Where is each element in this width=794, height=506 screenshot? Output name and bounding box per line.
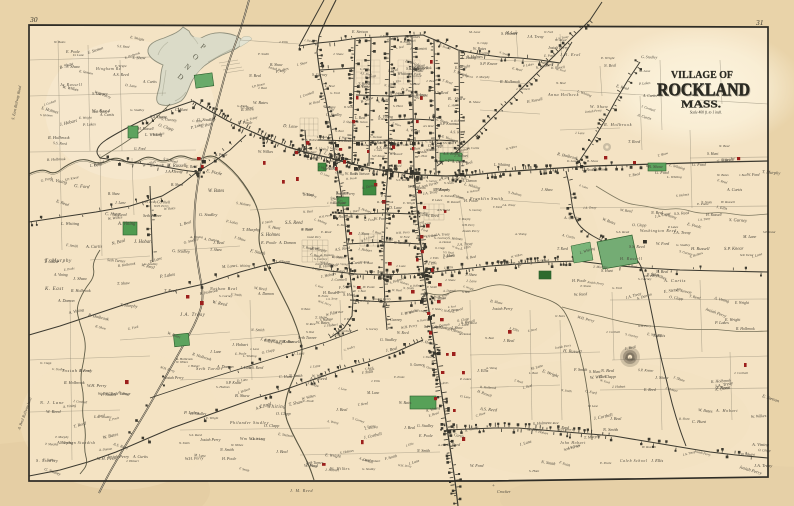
svg-text:30: 30 <box>29 15 38 24</box>
svg-text:D. Lane: D. Lane <box>388 205 402 210</box>
svg-text:W. Bates: W. Bates <box>717 173 729 177</box>
svg-text:R. Holbrook: R. Holbrook <box>735 327 755 331</box>
svg-text:M. Lane: M. Lane <box>742 234 757 239</box>
svg-text:J. Ellis: J. Ellis <box>477 368 489 373</box>
svg-text:Josiah Perry: Josiah Perry <box>492 306 513 311</box>
svg-text:S. Holmes: S. Holmes <box>592 167 608 172</box>
svg-text:S. Hunt: S. Hunt <box>303 193 315 197</box>
svg-text:W. Bates: W. Bates <box>365 269 376 274</box>
svg-text:J. Hobart: J. Hobart <box>134 240 153 245</box>
svg-text:Seth Turner: Seth Turner <box>143 213 162 218</box>
svg-text:J. Shaw: J. Shaw <box>417 150 428 154</box>
svg-text:S. Holmes: S. Holmes <box>306 138 319 142</box>
svg-text:O. Clapp: O. Clapp <box>428 143 443 148</box>
svg-text:N. Smith: N. Smith <box>416 449 430 453</box>
svg-text:K. East: K. East <box>44 287 64 292</box>
svg-text:J. Corthell: J. Corthell <box>606 330 620 334</box>
svg-text:W. Ford: W. Ford <box>470 463 484 468</box>
svg-text:A. Curtis: A. Curtis <box>726 187 742 192</box>
svg-text:MASS.: MASS. <box>681 99 721 111</box>
svg-text:E. Stetson: E. Stetson <box>336 223 351 227</box>
svg-text:N. Beal: N. Beal <box>603 63 617 68</box>
svg-text:W. Ford: W. Ford <box>747 173 760 177</box>
svg-text:E. Wright: E. Wright <box>600 56 615 60</box>
svg-text:W. Bates: W. Bates <box>527 427 542 432</box>
svg-text:E. Poole: E. Poole <box>393 375 405 379</box>
svg-text:E. Stetson: E. Stetson <box>354 172 370 176</box>
svg-text:F. Smith: F. Smith <box>426 285 438 289</box>
svg-text:J. Beal: J. Beal <box>358 290 366 293</box>
svg-text:S. Gurney: S. Gurney <box>469 208 482 212</box>
svg-text:E. Stetson: E. Stetson <box>351 29 368 34</box>
svg-text:T. Reed: T. Reed <box>344 317 354 321</box>
svg-text:B. Shaw: B. Shaw <box>679 417 691 421</box>
svg-text:J. Corthell: J. Corthell <box>331 278 347 282</box>
svg-text:A. Vining: A. Vining <box>189 235 203 239</box>
svg-text:S. Shaw: S. Shaw <box>150 114 167 119</box>
svg-text:A. Vining: A. Vining <box>751 442 770 447</box>
svg-text:G. Ford: G. Ford <box>330 91 340 95</box>
svg-text:J. Hobart: J. Hobart <box>232 342 249 347</box>
svg-text:A. Vining: A. Vining <box>53 273 68 277</box>
svg-text:A. Vining: A. Vining <box>514 232 527 236</box>
svg-text:S. Gurney: S. Gurney <box>434 236 448 240</box>
svg-text:S. Holmes: S. Holmes <box>40 113 53 117</box>
svg-text:L. Beal: L. Beal <box>354 116 365 120</box>
svg-text:T. Reed: T. Reed <box>557 247 568 251</box>
svg-text:W. Wilkes: W. Wilkes <box>258 150 273 154</box>
svg-text:A.S. Reed: A.S. Reed <box>449 130 465 135</box>
svg-text:J. Corthell: J. Corthell <box>330 310 343 314</box>
svg-text:M. Lane: M. Lane <box>587 404 599 408</box>
svg-text:S. Hunt: S. Hunt <box>529 469 540 473</box>
svg-text:J. Lane: J. Lane <box>458 323 470 327</box>
svg-text:W. Ford: W. Ford <box>425 260 436 264</box>
svg-text:N. Beal: N. Beal <box>371 141 383 145</box>
svg-text:J. Hobart: J. Hobart <box>368 459 380 463</box>
svg-text:T. Shaw: T. Shaw <box>117 280 130 286</box>
svg-text:T. Shaw: T. Shaw <box>432 307 441 311</box>
svg-text:W. Reed: W. Reed <box>445 269 455 272</box>
svg-text:R. Holbrook: R. Holbrook <box>603 122 633 127</box>
svg-text:Seth Turner: Seth Turner <box>111 391 131 396</box>
svg-text:A. Damon: A. Damon <box>442 288 457 293</box>
svg-text:N. Smith: N. Smith <box>178 441 190 445</box>
svg-text:ROCKLAND: ROCKLAND <box>657 80 750 100</box>
svg-text:S. Holmes: S. Holmes <box>412 93 427 97</box>
svg-text:E. Poole: E. Poole <box>214 153 228 157</box>
svg-text:H. Poole: H. Poole <box>362 285 375 289</box>
svg-text:Ja Russell: Ja Russell <box>60 82 83 87</box>
svg-text:G. Studley: G. Studley <box>172 248 190 254</box>
svg-text:J. Beal: J. Beal <box>503 338 515 343</box>
svg-text:E. Wright: E. Wright <box>378 168 391 172</box>
svg-text:B. Shaw: B. Shaw <box>171 183 184 187</box>
svg-text:W.H. Perry: W.H. Perry <box>462 224 475 227</box>
svg-text:J. Beal: J. Beal <box>739 174 747 177</box>
svg-text:O. Clapp: O. Clapp <box>40 361 52 365</box>
svg-text:Josiah Perry: Josiah Perry <box>355 167 372 171</box>
svg-text:J.A. Treay: J.A. Treay <box>502 203 516 207</box>
svg-text:A. Vining: A. Vining <box>336 262 348 266</box>
svg-text:G. Ford: G. Ford <box>692 162 707 167</box>
svg-text:B. Shaw: B. Shaw <box>448 96 466 101</box>
svg-text:J.A. Treay: J.A. Treay <box>326 296 339 301</box>
svg-text:J. Lane: J. Lane <box>575 131 585 135</box>
svg-text:F. Smith: F. Smith <box>380 194 392 198</box>
svg-text:J. Ellis: J. Ellis <box>279 40 289 44</box>
svg-text:Josiah Perry: Josiah Perry <box>107 454 129 459</box>
svg-text:A. Hobart: A. Hobart <box>715 408 738 413</box>
svg-text:J. Corthell: J. Corthell <box>404 40 416 43</box>
svg-text:S.S. Reed: S.S. Reed <box>189 433 202 437</box>
svg-text:Wm Whiting: Wm Whiting <box>240 436 266 441</box>
svg-text:S. Hunt: S. Hunt <box>707 152 719 156</box>
svg-text:J. Beal: J. Beal <box>276 449 288 454</box>
svg-text:N. Beal: N. Beal <box>718 144 730 148</box>
svg-text:J. Lane: J. Lane <box>293 351 305 356</box>
svg-text:John Hobart: John Hobart <box>560 441 586 445</box>
svg-text:H. Russell: H. Russell <box>641 445 656 449</box>
svg-text:J. Lane: J. Lane <box>115 201 126 205</box>
svg-text:G. Studley: G. Studley <box>362 467 376 471</box>
svg-text:M. Lane: M. Lane <box>417 235 428 238</box>
svg-text:H. Russell: H. Russell <box>446 200 460 204</box>
svg-text:B. Shaw: B. Shaw <box>357 84 369 88</box>
svg-text:J. Beal: J. Beal <box>426 79 435 83</box>
svg-text:S. Gurney: S. Gurney <box>312 73 327 77</box>
svg-text:L. Whiting: L. Whiting <box>666 175 682 179</box>
svg-text:B. Shaw: B. Shaw <box>648 164 663 169</box>
svg-text:E. Poole: E. Poole <box>418 433 433 438</box>
svg-text:S. Studley: S. Studley <box>36 458 59 463</box>
svg-text:L. Beal: L. Beal <box>324 84 335 88</box>
svg-text:Josiah Perry: Josiah Perry <box>336 192 355 196</box>
svg-text:N. J. Lane: N. J. Lane <box>39 400 64 405</box>
svg-text:W. Reed: W. Reed <box>397 331 409 335</box>
svg-text:A. Vining: A. Vining <box>378 273 393 277</box>
svg-text:J. Shaw: J. Shaw <box>445 278 456 282</box>
svg-text:W. Shaw: W. Shaw <box>590 104 608 109</box>
svg-text:A. Curtis: A. Curtis <box>466 146 480 150</box>
svg-text:E. Poole: E. Poole <box>237 120 253 125</box>
svg-text:J. Shaw: J. Shaw <box>423 356 432 359</box>
svg-text:S.P. Knear: S.P. Knear <box>480 61 498 66</box>
svg-text:W. Wilkes: W. Wilkes <box>312 374 327 378</box>
svg-text:T. Shaw: T. Shaw <box>465 273 477 277</box>
svg-text:N. Beal: N. Beal <box>334 129 344 133</box>
svg-text:O. Clapp: O. Clapp <box>758 448 771 453</box>
svg-text:S. Hunt: S. Hunt <box>343 293 356 297</box>
svg-text:W. Wilkes: W. Wilkes <box>330 467 350 471</box>
svg-text:C. Hunt: C. Hunt <box>418 154 427 158</box>
svg-text:N. Beal: N. Beal <box>248 73 262 78</box>
svg-text:T. Shaw: T. Shaw <box>315 315 328 320</box>
svg-text:T. Murphy: T. Murphy <box>459 218 471 221</box>
svg-text:J. Ellis: J. Ellis <box>651 458 663 463</box>
svg-text:S. Gurney: S. Gurney <box>366 327 379 331</box>
svg-text:L. Whiting: L. Whiting <box>493 163 510 167</box>
svg-text:T. Reed: T. Reed <box>164 288 178 293</box>
svg-text:R. Holbrook: R. Holbrook <box>333 215 353 219</box>
svg-text:W. Bates: W. Bates <box>555 314 566 318</box>
svg-text:A. Damon: A. Damon <box>409 46 427 51</box>
svg-text:M. Lane: M. Lane <box>638 69 651 73</box>
svg-text:O. Clapp: O. Clapp <box>415 309 427 313</box>
svg-text:J.A. Treay: J.A. Treay <box>583 206 597 210</box>
svg-text:Crocker: Crocker <box>497 489 511 494</box>
svg-text:S. Holmes: S. Holmes <box>216 385 230 389</box>
svg-text:H. Russell: H. Russell <box>322 291 339 295</box>
svg-text:J. Beal: J. Beal <box>610 416 622 421</box>
svg-text:J.H. Eral: J.H. Eral <box>560 52 581 57</box>
svg-text:Franklin Smith: Franklin Smith <box>469 196 504 201</box>
svg-text:Josiah Perry: Josiah Perry <box>164 376 184 380</box>
svg-text:T. Reed: T. Reed <box>448 442 461 447</box>
svg-text:T. Shaw: T. Shaw <box>436 326 448 330</box>
svg-text:B. Shaw: B. Shaw <box>741 452 755 457</box>
svg-text:N. Beal: N. Beal <box>300 228 312 232</box>
svg-text:Philander Studley: Philander Studley <box>229 420 269 425</box>
svg-text:S.P. Knear: S.P. Knear <box>724 246 744 251</box>
svg-text:A.S. Reed: A.S. Reed <box>436 208 450 212</box>
svg-text:W. Reed: W. Reed <box>360 261 370 264</box>
svg-text:J.A. Treay: J.A. Treay <box>180 313 206 318</box>
svg-text:B. Shaw: B. Shaw <box>587 159 599 163</box>
svg-text:S. Hunt: S. Hunt <box>393 104 403 108</box>
svg-text:S. Gurney: S. Gurney <box>426 180 438 183</box>
svg-text:S.S. Reed: S.S. Reed <box>389 164 402 168</box>
svg-text:N. Smith: N. Smith <box>602 427 619 432</box>
svg-text:T. Shaw: T. Shaw <box>343 120 354 124</box>
svg-text:N. Smith: N. Smith <box>402 286 415 290</box>
svg-text:G. Ford: G. Ford <box>134 147 146 151</box>
svg-text:T. Shaw: T. Shaw <box>580 284 592 288</box>
svg-text:N. Beal: N. Beal <box>600 368 615 373</box>
svg-text:E. Stetson: E. Stetson <box>356 121 368 124</box>
svg-text:A. Curtis: A. Curtis <box>642 94 657 98</box>
svg-text:Anna Holbeck: Anna Holbeck <box>547 92 579 97</box>
svg-text:W. Reed: W. Reed <box>46 409 61 414</box>
svg-text:E. Reed: E. Reed <box>643 388 656 392</box>
svg-text:H. Poole: H. Poole <box>571 278 586 283</box>
svg-text:S. Gurney: S. Gurney <box>729 217 747 223</box>
svg-text:P. Lakes: P. Lakes <box>459 377 472 381</box>
svg-text:R. Holbrook: R. Holbrook <box>175 357 193 361</box>
svg-text:J.A. Treay: J.A. Treay <box>527 34 544 39</box>
svg-text:W.H. Perry: W.H. Perry <box>87 383 106 388</box>
svg-text:G. Studley: G. Studley <box>380 337 397 342</box>
svg-text:A.S. Reed: A.S. Reed <box>112 72 130 77</box>
svg-text:N. Smith: N. Smith <box>443 182 454 185</box>
svg-text:Josiah Perry: Josiah Perry <box>373 297 391 301</box>
svg-text:P. Lakes: P. Lakes <box>183 410 199 415</box>
svg-text:Seth Turner: Seth Turner <box>298 335 317 340</box>
svg-text:W. Bates: W. Bates <box>54 40 66 44</box>
svg-text:S. Hunt: S. Hunt <box>589 370 601 374</box>
svg-text:A. Damon: A. Damon <box>278 240 296 245</box>
svg-text:T. Murphy: T. Murphy <box>434 188 450 192</box>
svg-text:S. Hunt: S. Hunt <box>601 269 614 273</box>
svg-text:T. Murphy: T. Murphy <box>45 442 59 446</box>
svg-text:H. Russell: H. Russell <box>705 213 722 217</box>
svg-text:S. Holmes: S. Holmes <box>501 31 518 36</box>
svg-text:J. Beal: J. Beal <box>458 176 467 181</box>
svg-text:O. Clapp: O. Clapp <box>274 259 291 264</box>
svg-text:Scale 400 ft. to 1 inch.: Scale 400 ft. to 1 inch. <box>690 111 722 115</box>
svg-text:S.S. Reed: S.S. Reed <box>249 366 263 370</box>
svg-text:W. Bates: W. Bates <box>473 47 487 51</box>
svg-text:G. Studley: G. Studley <box>641 55 658 60</box>
svg-text:J. Hobart: J. Hobart <box>126 459 139 463</box>
svg-text:F. Smith: F. Smith <box>257 52 269 56</box>
svg-text:S. Gurney: S. Gurney <box>386 317 402 322</box>
svg-text:J. Lane: J. Lane <box>210 350 221 354</box>
svg-text:A. Curtis: A. Curtis <box>347 273 358 276</box>
svg-text:G. Ford: G. Ford <box>612 286 622 290</box>
svg-text:R. Holbrook: R. Holbrook <box>376 200 394 204</box>
svg-text:L. Whiting: L. Whiting <box>235 264 251 268</box>
svg-text:Josiah Perry: Josiah Perry <box>315 262 332 266</box>
svg-text:W. Reed: W. Reed <box>555 38 567 42</box>
svg-text:O. Clapp: O. Clapp <box>435 247 446 250</box>
svg-text:Stephen Standish: Stephen Standish <box>60 441 96 445</box>
svg-text:W.H. Perry: W.H. Perry <box>185 455 204 461</box>
svg-text:H. Russell: H. Russell <box>137 127 154 131</box>
svg-text:B. Shaw: B. Shaw <box>108 192 120 196</box>
svg-text:N. Beal: N. Beal <box>484 336 494 340</box>
svg-text:L. Whiting: L. Whiting <box>392 71 410 76</box>
svg-text:R. Holbrook: R. Holbrook <box>450 118 466 123</box>
svg-text:C. Hunt: C. Hunt <box>175 107 189 112</box>
svg-text:W. Wilkes: W. Wilkes <box>405 35 420 39</box>
svg-text:J. Lane: J. Lane <box>396 264 406 268</box>
svg-text:E. Poole: E. Poole <box>543 53 556 58</box>
svg-text:C. Hunt: C. Hunt <box>692 419 707 424</box>
svg-text:T. Murphy: T. Murphy <box>45 258 72 264</box>
svg-text:N. Beal: N. Beal <box>461 291 470 294</box>
svg-text:P. Lakes: P. Lakes <box>646 273 660 277</box>
svg-text:A. Curtis: A. Curtis <box>99 113 115 117</box>
svg-text:J. M. Reed: J. M. Reed <box>290 488 314 493</box>
svg-text:A.S. Reed: A.S. Reed <box>422 125 434 128</box>
svg-text:C. Hunt: C. Hunt <box>279 374 293 379</box>
svg-text:J. Hobart: J. Hobart <box>327 201 339 205</box>
svg-text:A. Damon: A. Damon <box>438 240 452 244</box>
svg-text:Josiah Perry: Josiah Perry <box>548 46 568 50</box>
svg-text:J. Corthell: J. Corthell <box>734 371 748 375</box>
svg-text:Gideon Wadley: Gideon Wadley <box>500 260 533 265</box>
svg-text:D. Lane: D. Lane <box>566 159 577 163</box>
svg-text:S. Gurney: S. Gurney <box>638 277 652 281</box>
svg-text:S. Hunt: S. Hunt <box>410 82 420 86</box>
svg-text:N. Beal: N. Beal <box>650 210 664 215</box>
svg-text:L. Whiting: L. Whiting <box>259 405 286 410</box>
svg-text:G. Ford: G. Ford <box>237 104 247 108</box>
svg-text:H. Russell: H. Russell <box>331 255 347 260</box>
svg-text:J. Corthell: J. Corthell <box>337 329 352 333</box>
svg-text:S.P. Knear: S.P. Knear <box>226 381 242 385</box>
svg-text:S. Hunt: S. Hunt <box>443 254 456 258</box>
svg-text:J. Shaw: J. Shaw <box>66 64 80 69</box>
svg-text:A.S. Reed: A.S. Reed <box>433 91 448 95</box>
svg-text:T. Murphy: T. Murphy <box>476 75 490 79</box>
svg-text:H. Russell: H. Russell <box>720 200 735 204</box>
svg-text:L. Beal: L. Beal <box>528 371 538 375</box>
svg-text:S. Holmes: S. Holmes <box>261 233 280 238</box>
svg-text:W. Ford: W. Ford <box>400 235 410 239</box>
svg-text:G. Studley: G. Studley <box>326 159 341 163</box>
svg-text:S. Gurney: S. Gurney <box>219 294 233 298</box>
svg-text:Hingham Rd: Hingham Rd <box>95 67 121 71</box>
svg-text:B. Shaw: B. Shaw <box>469 100 481 104</box>
svg-text:G. Studley: G. Studley <box>130 108 145 112</box>
svg-text:Josiah Perry: Josiah Perry <box>307 236 322 239</box>
svg-text:W.H. Perry: W.H. Perry <box>638 324 652 328</box>
svg-text:31: 31 <box>755 18 764 27</box>
svg-text:E. Reed: E. Reed <box>320 230 332 234</box>
svg-text:Seth Turner: Seth Turner <box>196 366 223 371</box>
svg-text:J. Ellis: J. Ellis <box>430 256 439 260</box>
svg-text:T. Shaw: T. Shaw <box>210 248 222 252</box>
svg-text:A. Damon: A. Damon <box>257 292 274 296</box>
svg-text:S.S. Reed: S.S. Reed <box>285 221 303 226</box>
svg-text:W. Ford: W. Ford <box>656 241 670 246</box>
svg-text:J. Corthell: J. Corthell <box>516 87 530 91</box>
svg-text:W. Bates: W. Bates <box>399 401 412 405</box>
svg-text:N. Smith: N. Smith <box>219 447 234 452</box>
svg-text:W. Ford: W. Ford <box>384 151 395 155</box>
svg-text:R. Holbrook: R. Holbrook <box>47 135 71 140</box>
svg-text:L. Whiting: L. Whiting <box>144 132 162 137</box>
svg-text:J. Lane: J. Lane <box>466 279 477 283</box>
svg-text:A. Curtis: A. Curtis <box>416 214 427 217</box>
svg-text:W. Reed: W. Reed <box>306 322 316 326</box>
svg-text:S.P. Knear: S.P. Knear <box>763 230 777 234</box>
svg-text:Josiah Perry: Josiah Perry <box>462 229 480 233</box>
svg-text:P. Lakes: P. Lakes <box>431 198 443 202</box>
svg-text:B. Shaw: B. Shaw <box>270 63 283 67</box>
svg-text:W. Bates: W. Bates <box>253 100 268 105</box>
svg-text:W. Bates: W. Bates <box>301 308 310 311</box>
svg-text:J. Hobart: J. Hobart <box>454 154 469 158</box>
svg-text:E. Wright: E. Wright <box>78 116 92 120</box>
svg-text:A. Curtis: A. Curtis <box>142 80 157 84</box>
svg-text:J. Hobart: J. Hobart <box>612 384 627 389</box>
svg-text:R. Holbrook: R. Holbrook <box>70 288 91 293</box>
svg-text:A. Curtis: A. Curtis <box>663 278 686 283</box>
svg-text:A. Curtis: A. Curtis <box>563 215 579 220</box>
svg-text:G. Studley: G. Studley <box>676 243 691 247</box>
svg-text:W. Reed: W. Reed <box>426 213 440 218</box>
svg-text:T. Murphy: T. Murphy <box>242 227 260 232</box>
svg-text:+: + <box>492 484 495 489</box>
svg-text:S.P. Knear: S.P. Knear <box>638 368 654 373</box>
svg-text:E. Poole: E. Poole <box>260 240 277 245</box>
svg-text:N. Beal: N. Beal <box>555 81 566 85</box>
svg-text:G. Ford: G. Ford <box>445 159 454 162</box>
svg-text:T. Murphy: T. Murphy <box>55 435 69 439</box>
svg-text:A. Vining: A. Vining <box>117 222 136 227</box>
svg-text:S.S. Reed: S.S. Reed <box>616 230 629 234</box>
svg-text:J. Shaw: J. Shaw <box>655 375 669 380</box>
svg-text:J. Ellis: J. Ellis <box>371 379 381 383</box>
svg-text:G. Studley: G. Studley <box>326 113 342 117</box>
svg-text:E. Wright: E. Wright <box>734 301 750 305</box>
svg-text:J. Shaw: J. Shaw <box>541 188 553 192</box>
svg-text:E. Stetson: E. Stetson <box>368 135 383 139</box>
svg-text:S.P. Knear: S.P. Knear <box>276 339 294 344</box>
